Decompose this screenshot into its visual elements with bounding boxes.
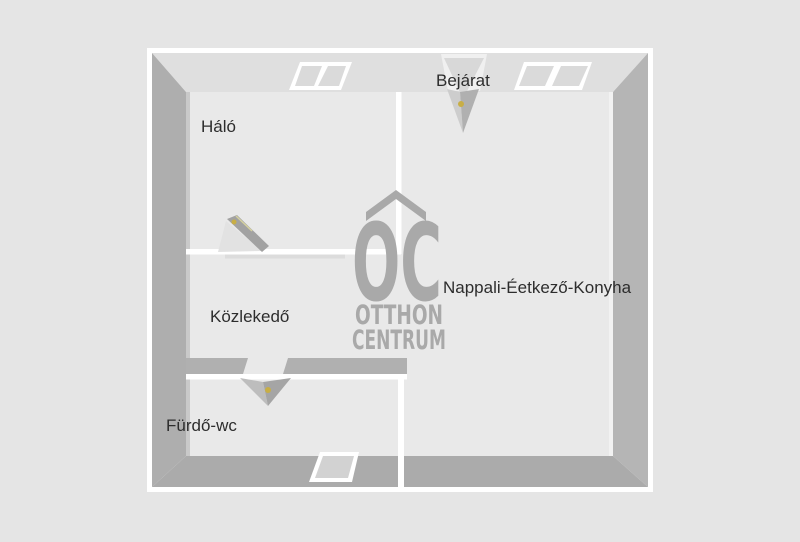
door-handle [232, 220, 237, 225]
wall-kozlekedo-furdo-line [186, 374, 407, 380]
entrance-label: Bejárat [436, 71, 490, 90]
wall-right-inner-highlight [609, 92, 613, 456]
door-handle [458, 101, 464, 107]
wall-right-face [613, 53, 648, 487]
otthon-centrum-logo: OC OTTHON CENTRUM [352, 190, 446, 356]
wall-left-inner-highlight [186, 92, 190, 456]
wall-kozlekedo-furdo-right-segment [283, 358, 407, 374]
room-label-halo: Háló [201, 117, 236, 136]
room-label-nappali: Nappali-Éetkező-Konyha [443, 278, 632, 297]
wall-halo-kozlekedo-shadow [225, 255, 345, 259]
room-label-kozlekedo: Közlekedő [210, 307, 289, 326]
window-halo [289, 62, 352, 90]
window-nappali [514, 62, 592, 90]
room-label-furdo: Fürdő-wc [166, 416, 237, 435]
wall-furdo-nappali [398, 379, 404, 492]
logo-name-line2: CENTRUM [352, 325, 446, 356]
floorplan-canvas: OC OTTHON CENTRUM Háló Bejárat Nappali-É… [0, 0, 800, 542]
wall-kozlekedo-furdo-left-segment [186, 358, 248, 374]
door-handle [265, 387, 271, 393]
